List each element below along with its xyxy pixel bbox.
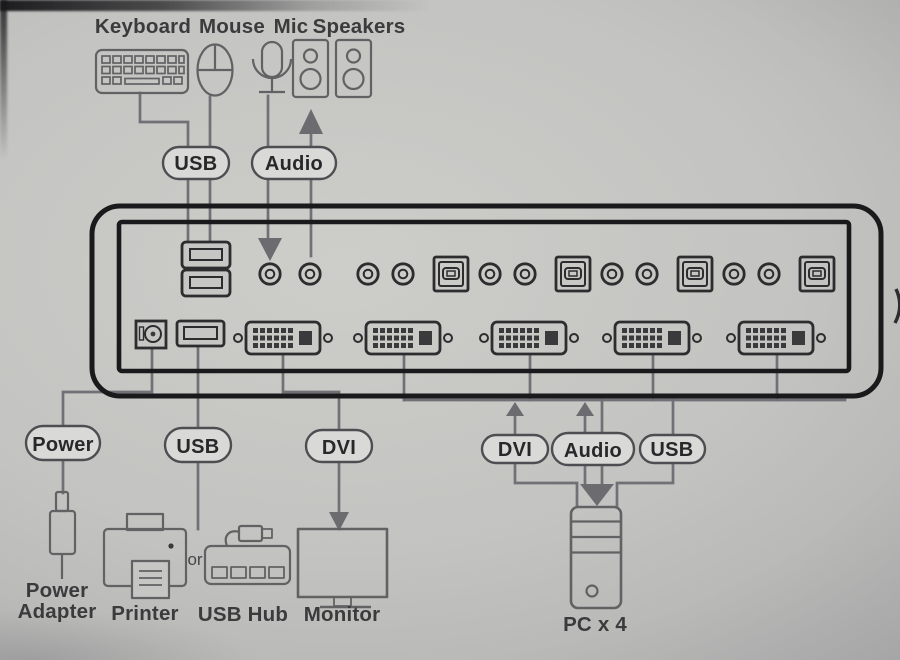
photo-edge-artifact (895, 289, 900, 323)
peripheral-devices: Power Adapter Printer or USB Hub (18, 492, 628, 636)
console-usb-pill-label: USB (174, 153, 217, 175)
keyboard-label: Keyboard (95, 15, 191, 38)
monitor-dvi-pill-label: DVI (322, 437, 356, 459)
pc-tower-icon (571, 507, 621, 608)
monitor-icon (298, 529, 387, 607)
power-pill-label: Power (32, 434, 94, 456)
power-adapter-label-line2: Adapter (18, 600, 97, 623)
pc4-port-group (724, 257, 834, 291)
pc-label: PC x 4 (563, 613, 627, 636)
pc3-dvi-port (603, 322, 701, 354)
pc-dvi-pill-label: DVI (498, 439, 532, 461)
kvm-connection-diagram: USB Audio Power USB DVI DVI Audio USB Ke… (0, 0, 900, 660)
scanned-manual-photo: USB Audio Power USB DVI DVI Audio USB Ke… (0, 0, 900, 660)
mouse-icon (198, 45, 233, 96)
peripheral-usb-a-port (177, 321, 224, 346)
power-line-top (63, 348, 152, 427)
pc2-port-group (480, 257, 590, 291)
power-adapter-icon (50, 492, 75, 579)
console-usb-a-ports (182, 242, 230, 296)
pc-audio-pill-label: Audio (564, 440, 622, 462)
power-adapter-label-line1: Power (26, 579, 89, 602)
arrow-up-pc-dvi (506, 402, 524, 416)
monitor-label: Monitor (304, 603, 381, 626)
pc-dvi-line-bottom (515, 462, 577, 506)
photo-top-shadow (0, 0, 430, 11)
or-label: or (187, 550, 202, 569)
printer-icon (104, 514, 186, 598)
mic-icon (253, 42, 291, 92)
console-devices: Keyboard Mouse Mic Speakers (95, 15, 405, 97)
arrow-up-pc-audio (576, 402, 594, 416)
console-dvi-port (234, 322, 332, 354)
speaker-right-icon (336, 40, 371, 97)
mic-label: Mic (274, 15, 309, 38)
pc-usb-line-bottom (617, 462, 673, 506)
pc4-dvi-port (727, 322, 825, 354)
arrow-down-into-mic-jack (258, 238, 282, 261)
dvi-monitor-line-top (283, 355, 339, 431)
speaker-left-icon (293, 40, 328, 97)
pc3-port-group (602, 257, 712, 291)
pc1-dvi-port (354, 322, 452, 354)
keyboard-icon (96, 50, 188, 93)
arrow-up-to-speakers (299, 109, 323, 134)
console-speaker-jack (300, 264, 320, 284)
console-mic-jack (260, 264, 280, 284)
pc2-dvi-port (480, 322, 578, 354)
pc1-port-group (358, 257, 468, 291)
arrow-down-into-pc (580, 484, 614, 506)
mouse-label: Mouse (199, 15, 265, 38)
peripheral-usb-pill-label: USB (176, 436, 219, 458)
pc-usb-pill-label: USB (650, 439, 693, 461)
speakers-label: Speakers (313, 15, 406, 38)
power-jack-port (136, 321, 166, 348)
usb-hub-icon (205, 526, 290, 584)
console-audio-pill-label: Audio (265, 153, 323, 175)
photo-left-shadow (0, 0, 7, 160)
printer-label: Printer (111, 602, 178, 625)
usb-hub-label: USB Hub (198, 603, 288, 626)
